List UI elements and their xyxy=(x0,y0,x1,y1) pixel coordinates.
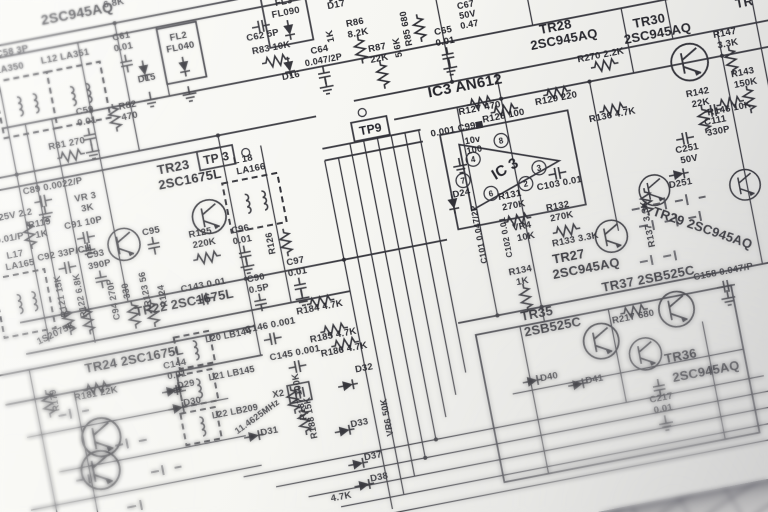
schematic-label: 6 xyxy=(488,189,495,199)
schematic-label: R81 270 xyxy=(47,135,86,153)
schematic-label: 50V xyxy=(680,152,700,166)
photo-of-circuit-schematic: TR2SC945AQ6.8KC58 3PLA350L12 LA351C610.0… xyxy=(0,0,768,512)
schematic-label: D30 xyxy=(182,395,202,409)
schematic-label: C92 33P/CH xyxy=(36,243,92,264)
schematic-label: 470 xyxy=(121,109,139,123)
schematic-label: D29 xyxy=(176,378,196,392)
schematic-label: TR xyxy=(734,0,755,11)
schematic-label: C95 xyxy=(141,224,161,238)
schematic-label: D251 xyxy=(668,176,694,191)
schematic-label: 330 xyxy=(120,282,133,299)
schematic-label: C58 3P xyxy=(0,43,30,60)
schematic-label: IC3 AN612 xyxy=(426,70,503,101)
schematic-label: 1K xyxy=(34,228,48,241)
schematic-label: C91 10P xyxy=(63,214,103,232)
schematic-paper: TR2SC945AQ6.8KC58 3PLA350L12 LA351C610.0… xyxy=(0,0,768,512)
schematic-label: R179 xyxy=(47,389,61,413)
schematic-label: 1K xyxy=(324,29,337,43)
schematic-drawing: TR2SC945AQ6.8KC58 3PLA350L12 LA351C610.0… xyxy=(0,0,768,512)
schematic-label: 10K xyxy=(516,230,536,244)
schematic-label: R121 15K xyxy=(52,274,70,318)
schematic-label: 0.01 xyxy=(287,265,309,280)
schematic-label: D16 xyxy=(281,69,301,83)
schematic-label: D15 xyxy=(137,71,157,85)
schematic-label: 3.3K xyxy=(717,37,740,52)
schematic-label: D33 xyxy=(350,416,370,430)
schematic-label: 8.2K xyxy=(347,26,370,41)
schematic-label: D17 xyxy=(326,0,346,12)
schematic-label: 0.01 xyxy=(232,233,254,248)
schematic-label: C146 0.001 xyxy=(244,315,297,336)
schematic-label: L21 LB145 xyxy=(208,364,256,383)
schematic-label: TP9 xyxy=(358,120,383,138)
schematic-label: 2 xyxy=(523,179,530,189)
schematic-label: L20 LB144 xyxy=(204,326,252,345)
schematic-label: 0.47 xyxy=(459,18,479,31)
schematic-label: VR6 50K xyxy=(378,398,395,437)
schematic-label: 3 xyxy=(536,163,543,173)
schematic-label: 4.7K xyxy=(330,490,353,505)
schematic-label: TR36 xyxy=(663,345,698,366)
schematic-label: C145 0.001 xyxy=(269,343,322,364)
schematic-label: R217 680 xyxy=(611,308,655,327)
schematic-label: D31 xyxy=(259,424,279,438)
schematic-label: LA350 xyxy=(0,60,25,76)
schematic-label: 0.01 xyxy=(113,40,135,55)
schematic-label: D32 xyxy=(354,361,374,375)
schematic-label: R181 22K xyxy=(73,384,119,403)
schematic-label: L12 LA351 xyxy=(40,46,91,66)
schematic-label: 0.01 xyxy=(653,402,675,417)
schematic-label: R129 220 xyxy=(534,89,578,108)
schematic-label: 0.01/P xyxy=(0,230,25,246)
schematic-label: 4 xyxy=(470,155,477,165)
schematic-label: 3K xyxy=(80,202,94,215)
schematic-label: TR29 2SC945AQ xyxy=(651,204,755,252)
schematic-label: 1K xyxy=(515,275,529,288)
schematic-label: 0.01 xyxy=(435,35,457,50)
schematic-label: 0.01 xyxy=(76,114,98,129)
schematic-label: 22K xyxy=(369,52,389,66)
schematic-label: D38 xyxy=(369,470,389,484)
schematic-label: 8 xyxy=(498,136,505,146)
schematic-label: 6.8K xyxy=(103,0,126,11)
schematic-label: C158 0.047/P xyxy=(693,261,755,283)
schematic-label: 0.5P xyxy=(248,282,271,297)
schematic-label: D40 xyxy=(539,370,559,384)
schematic-label: C101 0.047/2P xyxy=(468,204,489,264)
schematic-label: D41 xyxy=(585,372,605,386)
schematic-label: D37 xyxy=(363,449,383,463)
schematic-label: R126 xyxy=(263,232,277,256)
